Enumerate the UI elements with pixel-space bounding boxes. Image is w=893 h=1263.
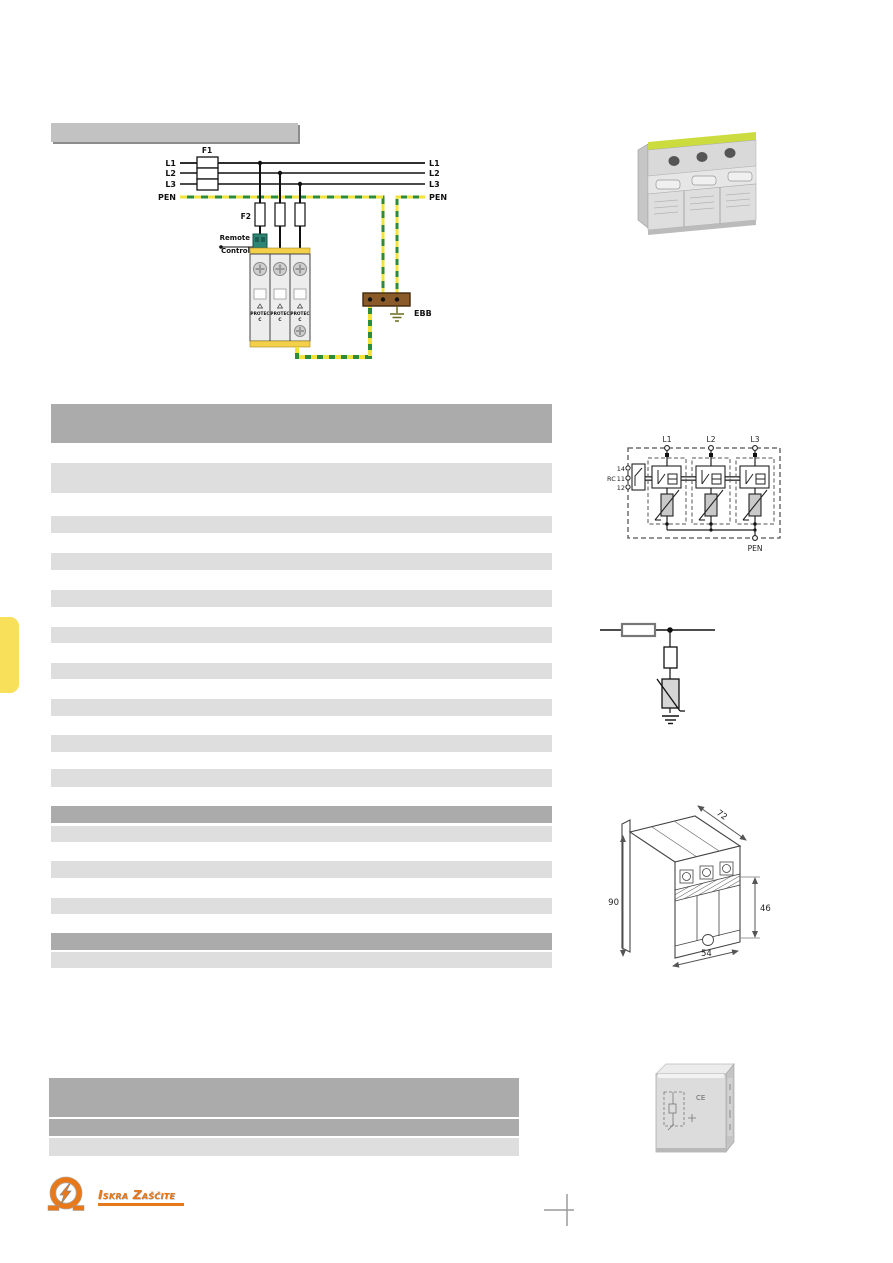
ground-symbol — [390, 306, 404, 321]
screw-terminals — [254, 263, 307, 276]
ce-mark: CE — [696, 1094, 705, 1102]
rc-terminal-block — [253, 234, 267, 248]
table-row — [49, 1138, 519, 1156]
svg-text:C: C — [258, 317, 261, 323]
table-row — [51, 826, 552, 842]
label-f2: F2 — [241, 212, 251, 221]
table-row — [51, 806, 552, 823]
brand-logo-icon — [46, 1176, 88, 1222]
table-row — [51, 933, 552, 950]
registration-mark — [542, 1192, 578, 1228]
label-pen-left: PEN — [158, 193, 176, 202]
table-row — [51, 516, 552, 533]
table-row — [51, 699, 552, 716]
label-l2-left: L2 — [165, 169, 176, 178]
product-photo-3pole — [626, 118, 766, 240]
application-circuit — [595, 615, 720, 730]
label-control: Control — [221, 247, 250, 255]
table-row — [51, 735, 552, 752]
schematic-l2: L2 — [707, 435, 716, 444]
ground-symbol — [662, 716, 679, 724]
schematic-l1: L1 — [663, 435, 672, 444]
label-f1: F1 — [202, 146, 212, 155]
fuse-f1 — [197, 157, 218, 190]
label-l2-right: L2 — [429, 169, 440, 178]
label-remote: Remote — [220, 234, 251, 242]
terminal-12: 12 — [617, 484, 625, 492]
fuse-f2 — [255, 203, 305, 226]
spd-device: PROTECC PROTECC PROTECC — [250, 248, 310, 347]
svg-text:C: C — [278, 317, 281, 323]
junction-dot — [278, 171, 282, 175]
table-row — [51, 861, 552, 878]
rail-notch — [703, 935, 714, 946]
label-ebb: EBB — [414, 309, 432, 318]
label-l3-right: L3 — [429, 180, 440, 189]
table-row — [51, 463, 552, 493]
table-row — [51, 663, 552, 679]
label-l3-left: L3 — [165, 180, 176, 189]
junction-dot — [258, 161, 262, 165]
terminal-14: 14 — [617, 465, 625, 473]
dim-54: 54 — [701, 949, 712, 959]
product-photo-module: CE — [646, 1058, 742, 1162]
table-row — [51, 952, 552, 968]
table-row — [51, 627, 552, 643]
schematic-l3: L3 — [751, 435, 760, 444]
label-l1-right: L1 — [429, 159, 440, 168]
schematic-pen: PEN — [748, 544, 763, 553]
wiring-diagram: L1 L2 L3 PEN L1 L2 L3 PEN F1 F2 Remote — [80, 143, 450, 378]
dim-90: 90 — [608, 898, 619, 908]
svg-text:PROTEC: PROTEC — [250, 311, 269, 317]
series-fuse — [622, 624, 655, 636]
module-front — [656, 1074, 726, 1152]
module-top — [656, 1064, 734, 1074]
pen-collector — [667, 524, 757, 540]
junction-dot — [298, 182, 302, 186]
module-1 — [648, 446, 686, 526]
module-2 — [692, 446, 730, 526]
table-row — [49, 1078, 519, 1117]
svg-text:PROTEC: PROTEC — [270, 311, 289, 317]
varistor-symbol — [657, 679, 685, 711]
table-row — [51, 553, 552, 570]
side-fin — [638, 144, 648, 228]
dimension-drawing: 72 90 46 54 — [600, 790, 790, 985]
module-3 — [736, 446, 774, 526]
table-row — [51, 590, 552, 607]
dim-46: 46 — [760, 904, 771, 914]
brand-name: Iskra Zaščite — [98, 1188, 184, 1206]
branch-fuse — [664, 647, 677, 668]
electrical-schematic: L1 L2 L3 14 11 12 RC — [605, 430, 790, 565]
rc-label: RC — [607, 475, 616, 483]
section-title-bar — [51, 123, 298, 142]
svg-text:C: C — [298, 317, 301, 323]
label-l1-left: L1 — [165, 159, 176, 168]
table-row — [51, 898, 552, 914]
terminal-11: 11 — [617, 475, 625, 483]
table-row — [51, 404, 552, 443]
svg-text:PROTEC: PROTEC — [290, 311, 309, 317]
table-row — [51, 769, 552, 787]
chapter-tab — [0, 617, 19, 693]
dim-72: 72 — [714, 808, 729, 822]
datasheet-page: L1 L2 L3 PEN L1 L2 L3 PEN F1 F2 Remote — [0, 0, 893, 1263]
label-pen-right: PEN — [429, 193, 447, 202]
table-row — [49, 1119, 519, 1136]
ebb-bar — [363, 293, 410, 306]
rc-contact-block — [626, 464, 645, 490]
